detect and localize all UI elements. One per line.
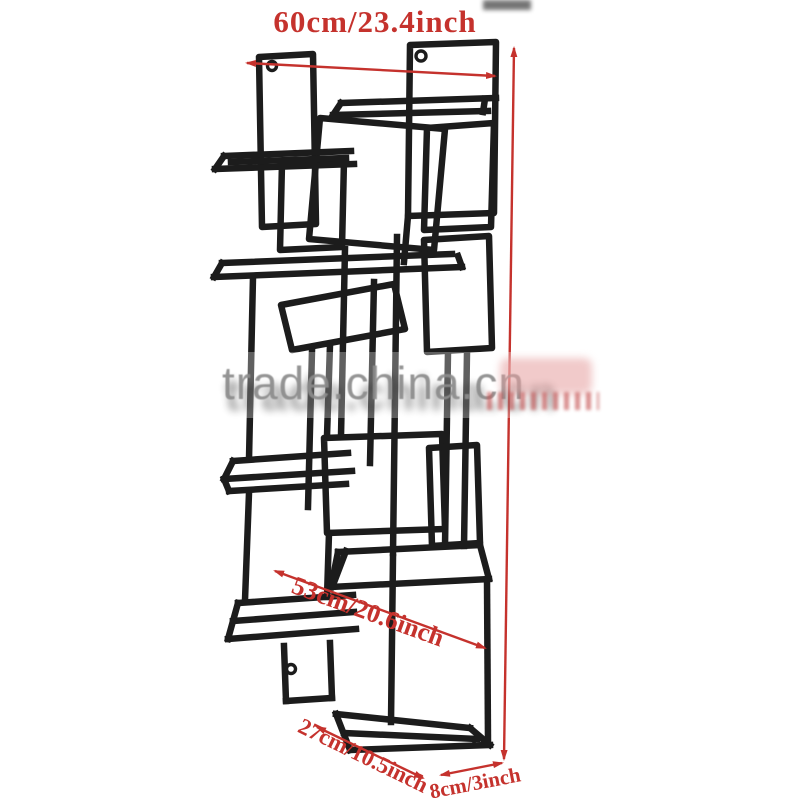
keyhole-icon (268, 62, 277, 71)
shelf-upper-left (215, 151, 354, 169)
watermark-text: trade.china.cn (222, 356, 525, 410)
keyhole-icon (416, 51, 426, 61)
frame-top-left (259, 54, 316, 227)
shelf-mid-left (224, 453, 352, 491)
watermark-pink-smudge (500, 358, 592, 394)
width-dimension-arrow (247, 63, 495, 76)
keyhole-icon (287, 665, 296, 674)
watermark-pink-marks (487, 392, 599, 410)
product-image: trade.china.cn trade.china.cn 60cm/23.4i… (0, 0, 800, 800)
width-dimension-label: 60cm/23.4inch (240, 6, 510, 39)
shelf-lower-right (331, 545, 489, 587)
shelf-top-right (333, 98, 496, 115)
